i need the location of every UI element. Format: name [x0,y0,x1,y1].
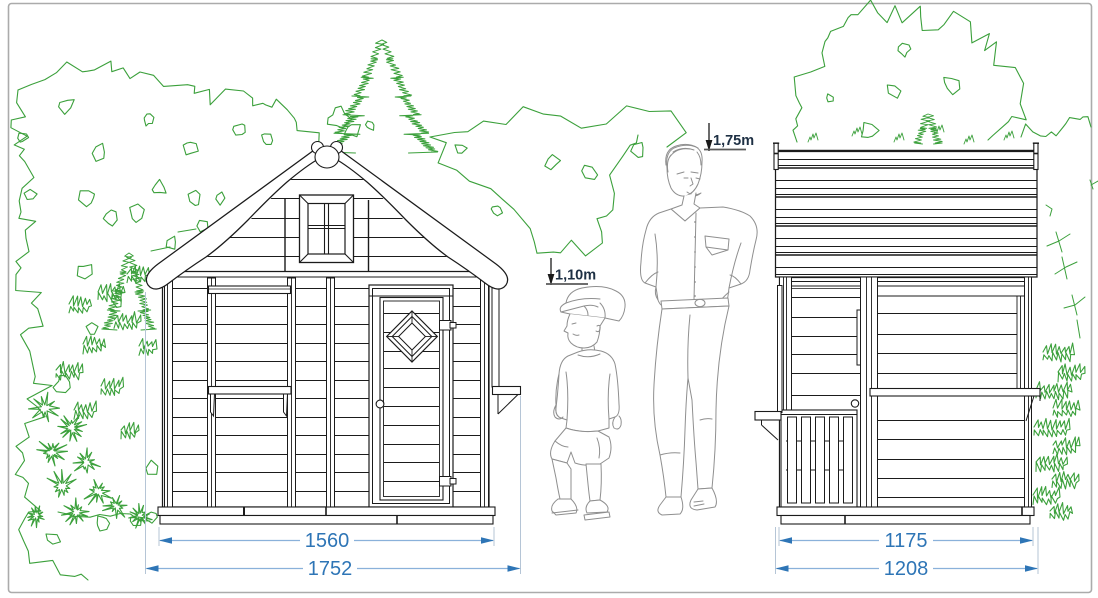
svg-text:1,10m: 1,10m [555,268,596,284]
svg-text:1560: 1560 [305,530,350,552]
svg-text:1175: 1175 [884,530,927,552]
svg-text:1752: 1752 [308,558,353,580]
svg-text:1,75m: 1,75m [713,133,754,149]
svg-text:1208: 1208 [884,558,929,580]
